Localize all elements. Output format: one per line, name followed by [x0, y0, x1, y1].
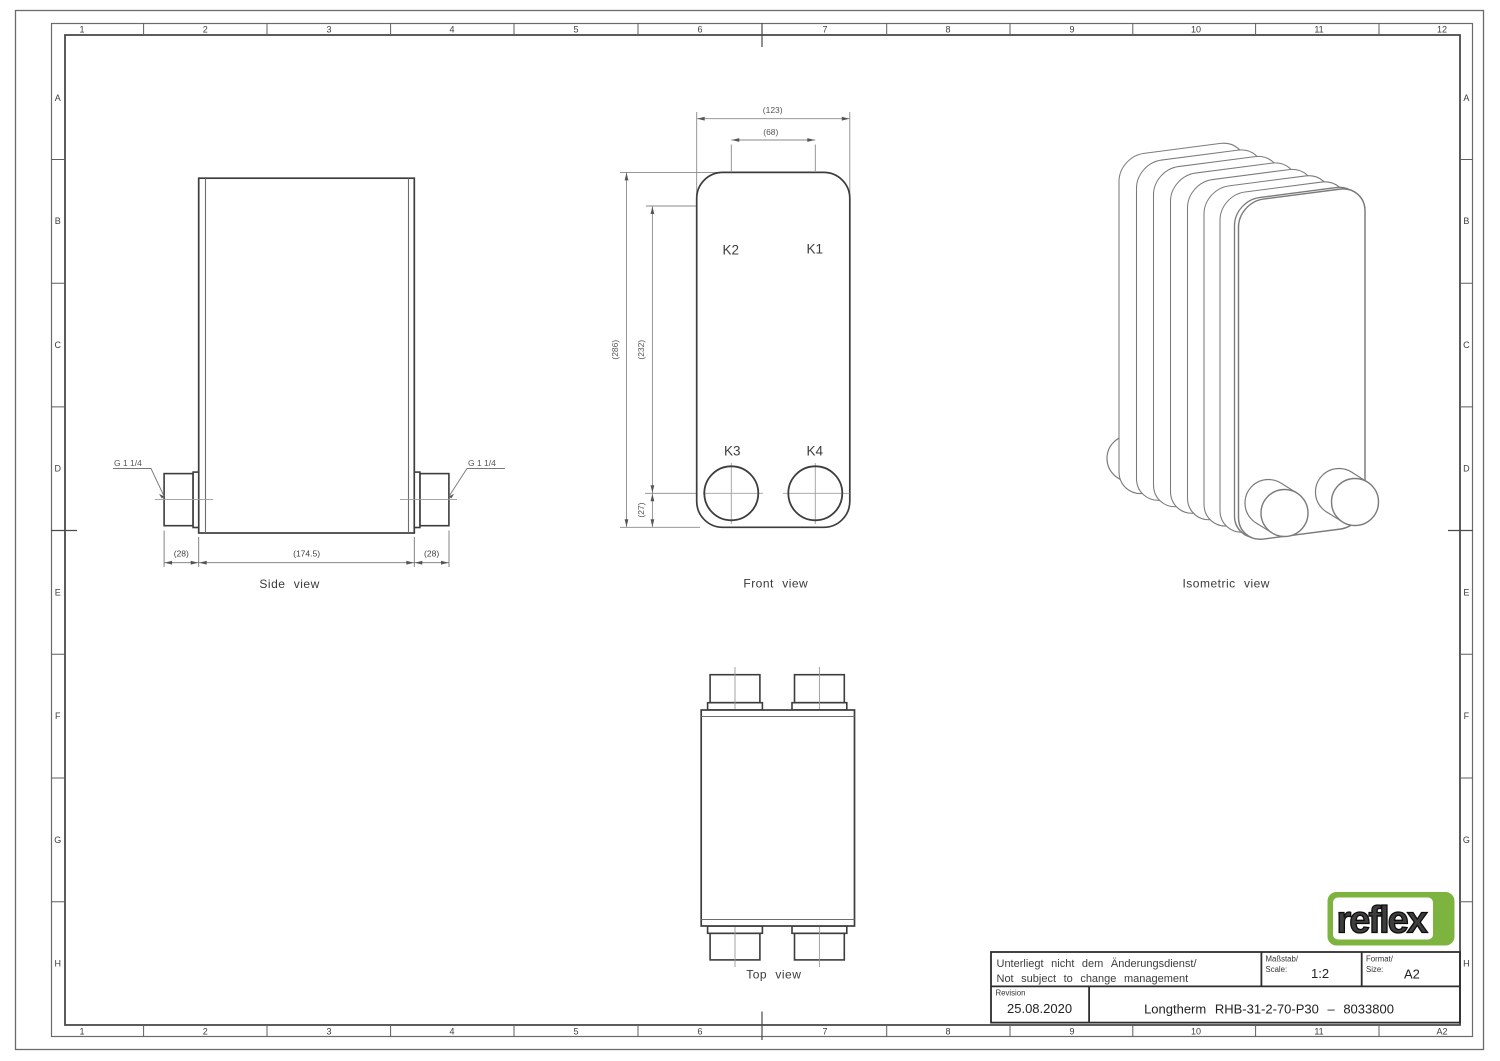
svg-text:B: B — [1463, 216, 1469, 226]
svg-text:B: B — [55, 216, 61, 226]
svg-text:C: C — [1463, 340, 1470, 350]
svg-text:11: 11 — [1314, 1027, 1323, 1037]
svg-text:K3: K3 — [724, 444, 741, 459]
svg-text:(174.5): (174.5) — [293, 549, 320, 559]
svg-text:1:2: 1:2 — [1311, 966, 1329, 981]
svg-text:7: 7 — [822, 1027, 827, 1037]
svg-text:25.08.2020: 25.08.2020 — [1007, 1001, 1072, 1016]
svg-text:K4: K4 — [806, 444, 823, 459]
svg-text:9: 9 — [1069, 1027, 1074, 1037]
svg-text:(123): (123) — [763, 105, 783, 115]
svg-text:Scale:: Scale: — [1266, 965, 1288, 974]
svg-text:(232): (232) — [636, 340, 646, 360]
svg-text:E: E — [55, 588, 61, 598]
svg-text:F: F — [1464, 711, 1470, 721]
svg-text:Not subject to change manageme: Not subject to change management — [997, 973, 1189, 985]
svg-text:E: E — [1463, 588, 1469, 598]
svg-text:4: 4 — [449, 1027, 454, 1037]
svg-text:(68): (68) — [763, 127, 778, 137]
svg-text:K1: K1 — [806, 242, 823, 257]
svg-text:G: G — [54, 835, 61, 845]
svg-text:4: 4 — [449, 25, 454, 35]
svg-text:D: D — [1463, 464, 1470, 474]
svg-text:G 1 1/4: G 1 1/4 — [468, 458, 496, 468]
svg-text:8: 8 — [945, 1027, 950, 1037]
svg-text:7: 7 — [822, 25, 827, 35]
svg-text:(27): (27) — [636, 502, 646, 517]
svg-text:K2: K2 — [723, 243, 740, 258]
svg-text:9: 9 — [1069, 25, 1074, 35]
svg-text:Top view: Top view — [746, 968, 801, 982]
svg-text:reflex: reflex — [1337, 900, 1428, 942]
svg-text:5: 5 — [573, 1027, 578, 1037]
svg-text:A: A — [1463, 93, 1469, 103]
svg-text:G: G — [1463, 835, 1470, 845]
svg-text:6: 6 — [697, 25, 702, 35]
svg-text:Unterliegt nicht dem Änderungs: Unterliegt nicht dem Änderungsdienst/ — [997, 958, 1198, 970]
svg-text:1: 1 — [79, 1027, 84, 1037]
svg-text:2: 2 — [203, 1027, 208, 1037]
svg-text:2: 2 — [203, 25, 208, 35]
svg-text:Isometric view: Isometric view — [1182, 577, 1270, 591]
svg-text:5: 5 — [573, 25, 578, 35]
svg-text:Longtherm RHB-31-2-70-P30 – 80: Longtherm RHB-31-2-70-P30 – 8033800 — [1144, 1002, 1394, 1017]
svg-text:D: D — [55, 464, 62, 474]
svg-text:12: 12 — [1437, 25, 1447, 35]
svg-text:G 1 1/4: G 1 1/4 — [114, 458, 142, 468]
svg-text:F: F — [55, 711, 61, 721]
svg-text:3: 3 — [326, 1027, 331, 1037]
svg-text:C: C — [55, 340, 62, 350]
svg-text:1: 1 — [79, 25, 84, 35]
svg-text:(286): (286) — [610, 340, 620, 360]
svg-text:Format/: Format/ — [1366, 955, 1394, 964]
svg-text:Maßstab/: Maßstab/ — [1266, 955, 1299, 964]
svg-text:A2: A2 — [1436, 1027, 1447, 1037]
svg-text:A2: A2 — [1404, 967, 1420, 982]
svg-text:10: 10 — [1191, 25, 1201, 35]
svg-text:Side view: Side view — [259, 577, 319, 591]
svg-text:H: H — [1463, 959, 1470, 969]
svg-text:8: 8 — [945, 25, 950, 35]
svg-text:A: A — [55, 93, 61, 103]
svg-text:(28): (28) — [424, 549, 439, 559]
svg-text:Revision: Revision — [996, 989, 1026, 998]
svg-text:Front view: Front view — [743, 577, 808, 591]
svg-text:Size:: Size: — [1366, 965, 1383, 974]
svg-text:11: 11 — [1314, 25, 1323, 35]
svg-text:6: 6 — [697, 1027, 702, 1037]
svg-text:10: 10 — [1191, 1027, 1201, 1037]
svg-text:3: 3 — [326, 25, 331, 35]
svg-text:H: H — [55, 959, 62, 969]
svg-text:(28): (28) — [174, 549, 189, 559]
